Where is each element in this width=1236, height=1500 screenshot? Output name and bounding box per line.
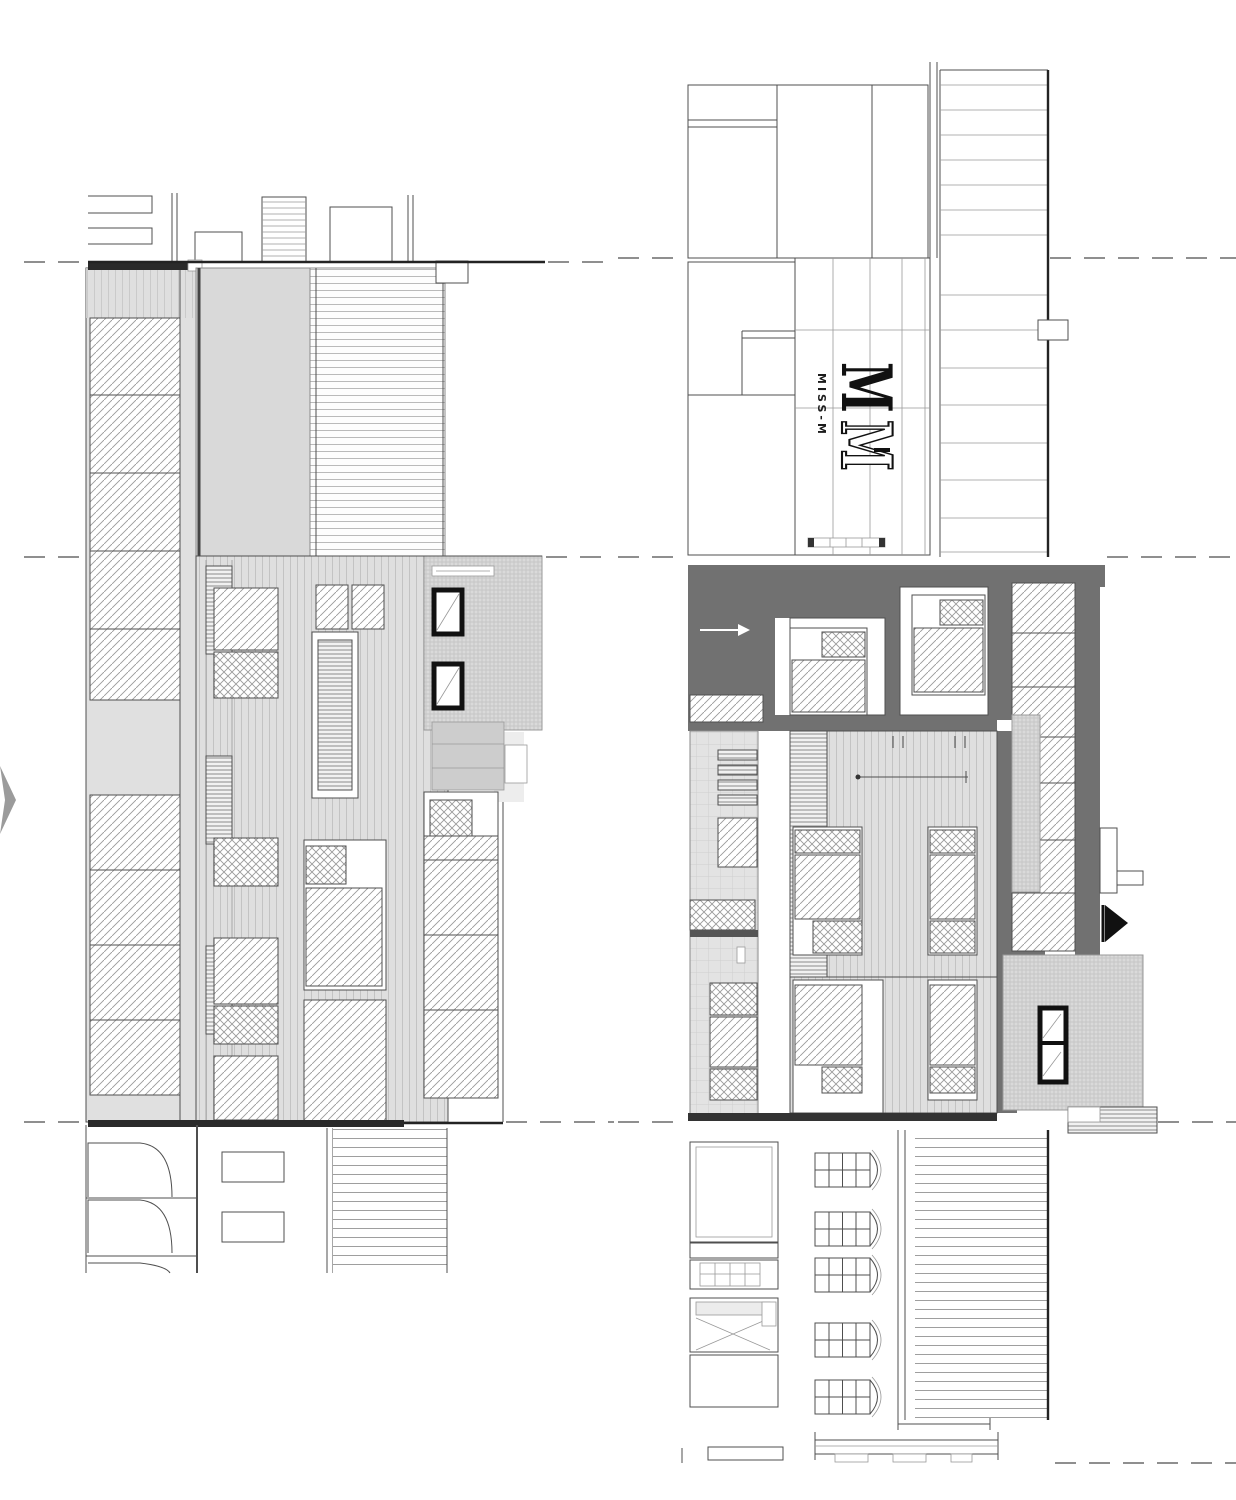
left-lower-arcade <box>86 1125 447 1273</box>
east-protrusions <box>1100 828 1143 942</box>
missm-label: MISS-M <box>815 373 828 437</box>
floor-annex <box>1003 955 1157 1133</box>
missm-panel: MM MISS-M <box>795 258 930 555</box>
arched-window-4 <box>815 1320 881 1360</box>
neighbour-ladder-strip <box>262 197 306 262</box>
scale-bar <box>808 538 885 547</box>
skylight-band-upper <box>90 318 180 700</box>
arched-windows <box>815 1150 881 1417</box>
right-ladder-roof-upper <box>940 70 1048 258</box>
arch-1 <box>88 1143 172 1197</box>
right-floor-plan: MM MISS-M <box>688 62 1157 1462</box>
cabin-bed-upper-left <box>793 827 862 955</box>
terrace-deck <box>790 731 997 1113</box>
left-roof-plan <box>86 193 545 1273</box>
street-furniture <box>708 1418 998 1462</box>
deck-skylights-west <box>214 588 278 1120</box>
lower-left-block <box>690 1142 778 1407</box>
right-ladder-roof-lower <box>940 258 1068 557</box>
annex-walkway <box>1068 1107 1157 1133</box>
cabin-bed-lower-left <box>793 980 883 1113</box>
left-neighbour-outlines <box>88 193 413 262</box>
arched-window-1 <box>815 1150 881 1190</box>
door-leaf <box>737 947 745 963</box>
right-neighbour-outlines <box>688 62 1048 258</box>
hall-skylight <box>690 695 763 722</box>
west-service-column <box>690 731 758 1120</box>
missm-zone: MM MISS-M <box>688 258 1068 557</box>
courtyard-terrace <box>196 268 310 557</box>
east-roof-panels <box>424 722 527 1098</box>
missm-logo-bar <box>874 448 890 452</box>
right-plan-base-edge <box>688 1113 997 1121</box>
battens-roof <box>310 261 468 556</box>
bedroom-a <box>790 618 885 715</box>
arched-window-5 <box>815 1377 881 1417</box>
orientation-arrow-icon <box>0 766 16 834</box>
bedroom-b <box>900 587 988 715</box>
deck-stair-run <box>318 640 352 790</box>
pennant-marker <box>1105 905 1128 942</box>
west-wing <box>86 260 202 1122</box>
right-lower-zone <box>690 1130 1048 1462</box>
arch-2 <box>88 1200 172 1253</box>
roof-annex <box>424 556 542 730</box>
arched-window-3 <box>815 1255 881 1295</box>
plan-sheet: MM MISS-M <box>0 0 1236 1500</box>
east-hatch-column <box>1012 583 1075 951</box>
arched-window-2 <box>815 1209 881 1249</box>
ladder-side-tab <box>1038 320 1068 340</box>
left-lower-stripes <box>327 1128 447 1273</box>
site-plan-drawing: MM MISS-M <box>0 0 1236 1500</box>
lower-stripes-roof <box>898 1130 1048 1420</box>
cabin-bed-upper-right <box>928 827 977 955</box>
apartment-floor <box>688 565 1157 1133</box>
cabin-bed-lower-right <box>928 980 977 1100</box>
arch-3 <box>88 1263 170 1273</box>
left-plan-base-edge <box>88 1120 404 1127</box>
